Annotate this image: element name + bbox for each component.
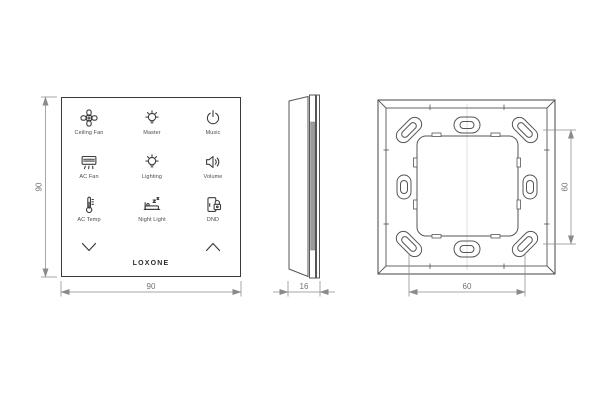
button-label: Master [122, 130, 182, 136]
button-label: Music [183, 130, 243, 136]
dim-label-front-width: 90 [147, 282, 156, 291]
dim-front-height: 90 [35, 97, 58, 277]
bulb-icon [141, 151, 163, 173]
back-view [378, 100, 555, 274]
button-music: Music [183, 107, 243, 136]
frame-ticks [384, 105, 550, 270]
speaker-icon [202, 151, 224, 173]
button-label: DND [183, 217, 243, 223]
button-label: Ceiling Fan [59, 130, 119, 136]
button-label: AC Fan [59, 174, 119, 180]
nav-up [205, 239, 221, 257]
chevron-down-icon [81, 242, 97, 252]
chevron-up-icon [205, 242, 221, 252]
screw-slot-top-right [509, 114, 540, 145]
button-dnd: DND [183, 194, 243, 223]
brand-logo: LOXONE [62, 260, 240, 267]
screw-slot-left [397, 175, 411, 199]
button-label: AC Temp [59, 217, 119, 223]
ceiling-fan-icon [78, 107, 100, 129]
front-view-panel: Ceiling Fan Master Music [61, 97, 241, 277]
ac-unit-icon [78, 151, 100, 173]
dim-label-back-width: 60 [463, 282, 472, 291]
side-mounting-clip [311, 122, 315, 250]
button-label: Volume [183, 174, 243, 180]
screw-slot-top-left [393, 114, 424, 145]
nav-down [81, 239, 97, 257]
thermometer-icon [78, 194, 100, 216]
bed-icon [141, 194, 163, 216]
dim-side-depth: 16 [273, 281, 335, 297]
button-label: Lighting [122, 174, 182, 180]
bulb-icon [141, 107, 163, 129]
side-view [289, 95, 320, 278]
dim-front-width: 90 [61, 281, 241, 297]
button-ac-fan: AC Fan [59, 151, 119, 180]
button-volume: Volume [183, 151, 243, 180]
dim-label-side-depth: 16 [300, 282, 309, 291]
button-night-light: Night Light [122, 194, 182, 223]
button-ceiling-fan: Ceiling Fan [59, 107, 119, 136]
frame-outer [378, 100, 555, 274]
button-label: Night Light [122, 217, 182, 223]
side-back-strip [317, 95, 320, 278]
screw-slot-right [523, 175, 537, 199]
dim-label-front-height: 90 [35, 182, 44, 191]
button-ac-temp: AC Temp [59, 194, 119, 223]
power-icon [202, 107, 224, 129]
side-glass-face [289, 97, 308, 277]
door-lock-icon [202, 194, 224, 216]
button-lighting: Lighting [122, 151, 182, 180]
frame-corner-miters [378, 100, 555, 274]
dim-back-height: 60 [543, 130, 576, 244]
mounting-plate [417, 136, 518, 236]
dim-label-back-height: 60 [561, 182, 570, 191]
button-master: Master [122, 107, 182, 136]
